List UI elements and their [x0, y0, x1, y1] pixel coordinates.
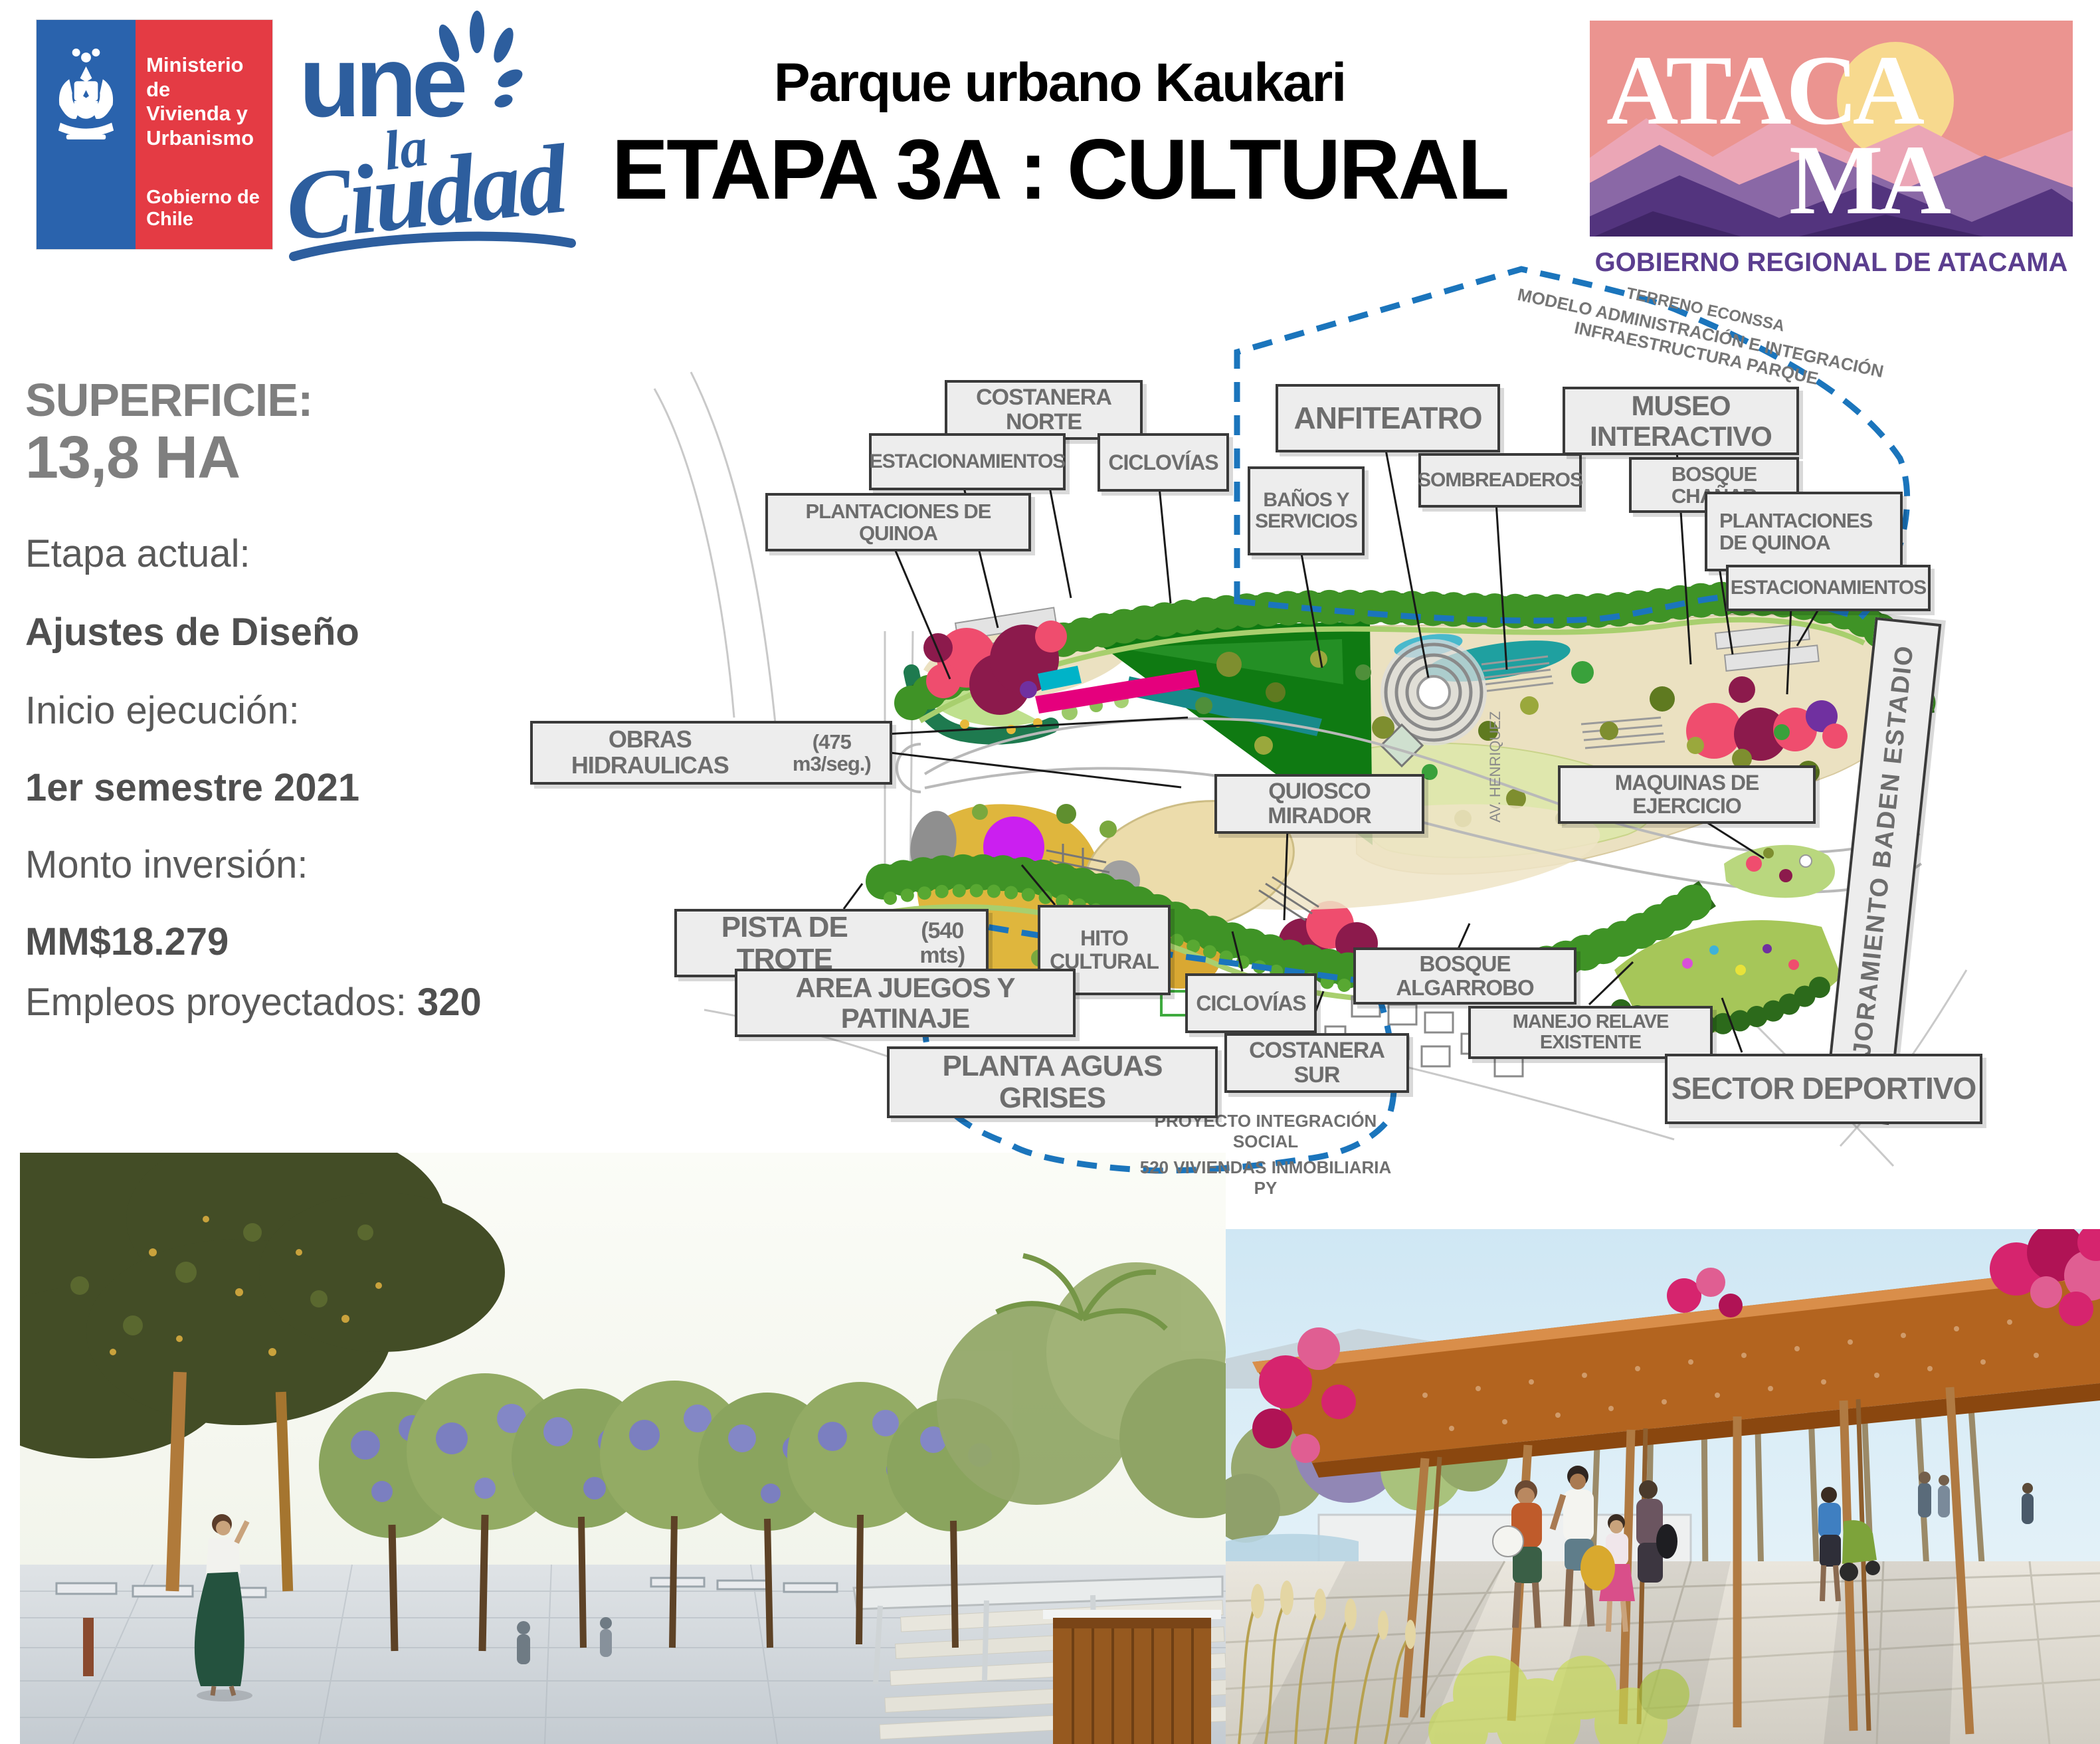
ministry-name-line2: Vivienda y [146, 102, 248, 125]
atacama-logo-art: ATACA MA [1586, 17, 2076, 240]
maquinas-garden [1724, 845, 1835, 898]
render-photo-pergola [1226, 1229, 2100, 1744]
atacama-wordmark-bottom: MA [1789, 125, 1951, 235]
inicio-label: Inicio ejecución: [25, 688, 300, 733]
monto-value: MM$18.279 [25, 920, 229, 964]
atacama-logo: ATACA MA GOBIERNO REGIONAL DE ATACAMA [1586, 17, 2076, 278]
etapa-label: Etapa actual: [25, 532, 250, 576]
label-planta-aguas-grises: PLANTA AGUAS GRISES [887, 1046, 1218, 1118]
label-estacionamientos-norte: ESTACIONAMIENTOS [869, 433, 1066, 490]
une-la-ciudad-logo: une la Ciudad [284, 5, 580, 274]
label-maquinas-ejercicio: MAQUINAS DE EJERCICIO [1558, 765, 1816, 824]
label-anfiteatro: ANFITEATRO [1276, 384, 1500, 452]
monto-label: Monto inversión: [25, 842, 308, 887]
render-photo-alameda [20, 1153, 1226, 1744]
label-obras-hidraulicas: OBRAS HIDRAULICAS (475 m3/seg.) [530, 721, 892, 785]
label-quiosco-mirador: QUIOSCO MIRADOR [1214, 774, 1424, 834]
label-estacionamientos-este: ESTACIONAMIENTOS [1726, 565, 1931, 611]
empleos-label: Empleos proyectados: [25, 981, 407, 1024]
slide-subtitle: ETAPA 3A : CULTURAL [571, 121, 1548, 219]
superficie-label: SUPERFICIE: [25, 373, 312, 427]
label-museo-interactivo: MUSEO INTERACTIVO [1563, 387, 1799, 455]
label-manejo-relave: MANEJO RELAVE EXISTENTE [1468, 1006, 1713, 1059]
label-plantaciones-quinoa-este: PLANTACIONES DE QUINOA [1705, 492, 1903, 571]
ministry-flag-red: Ministerio de Vivienda y Urbanismo Gobie… [136, 20, 272, 249]
label-ciclovias-sur: CICLOVÍAS [1185, 973, 1317, 1033]
une-underline-swoosh [284, 225, 580, 271]
ministry-name-line3: Urbanismo [146, 126, 254, 149]
label-costanera-norte: COSTANERA NORTE [945, 380, 1143, 440]
une-leaves-icon [429, 7, 529, 113]
label-banos-servicios: BAÑOS Y SERVICIOS [1248, 466, 1365, 555]
proyecto-note: PROYECTO INTEGRACIÓN SOCIAL 520 VIVIENDA… [1133, 1111, 1398, 1199]
ministry-gov: Gobierno de Chile [146, 187, 272, 231]
proyecto-note-line2: 520 VIVIENDAS INMOBILIARIA PY [1133, 1157, 1398, 1199]
empleos-row: Empleos proyectados: 320 [25, 980, 482, 1024]
inicio-value: 1er semestre 2021 [25, 765, 359, 810]
label-sector-deportivo: SECTOR DEPORTIVO [1665, 1054, 1982, 1124]
slide-title: Parque urbano Kaukari [598, 52, 1521, 114]
label-pista-trote: PISTA DE TROTE (540 mts) [674, 909, 989, 977]
label-area-juegos: AREA JUEGOS Y PATINAJE [735, 969, 1076, 1037]
ministry-name-line1: Ministerio de [146, 53, 243, 101]
ministry-flag-blue [37, 20, 136, 249]
label-costanera-sur: COSTANERA SUR [1224, 1033, 1409, 1093]
etapa-value: Ajustes de Diseño [25, 610, 359, 654]
street-label: AV. HENRIQUEZ [1487, 712, 1504, 823]
chile-coat-of-arms-icon [37, 20, 136, 249]
superficie-value: 13,8 HA [25, 424, 240, 492]
label-bosque-algarrobo: BOSQUE ALGARROBO [1353, 947, 1576, 1005]
ministry-name: Ministerio de Vivienda y Urbanismo [146, 53, 272, 150]
label-ciclovias-norte: CICLOVÍAS [1098, 433, 1229, 492]
ministry-logo: Ministerio de Vivienda y Urbanismo Gobie… [37, 20, 272, 249]
slide-parque-kaukari: { "header": { "ministry": { "name_line1"… [0, 0, 2100, 1744]
label-plantaciones-quinoa-oeste: PLANTACIONES DE QUINOA [765, 493, 1031, 551]
empleos-value: 320 [417, 981, 482, 1024]
label-sombreaderos: SOMBREADEROS [1418, 453, 1582, 508]
